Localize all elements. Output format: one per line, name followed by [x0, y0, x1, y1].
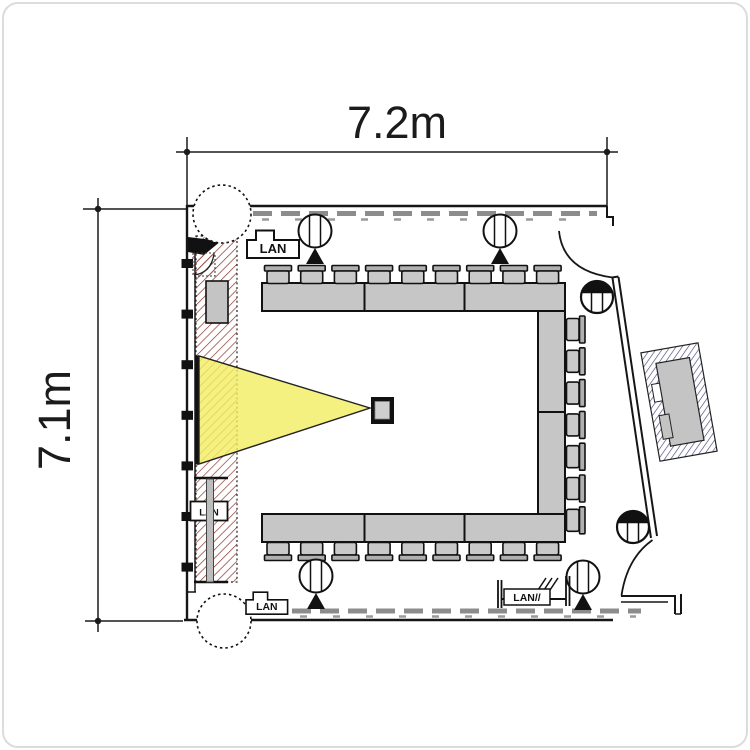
chair-seat — [334, 271, 356, 284]
chair-seat — [436, 271, 458, 284]
table-segment-joints — [365, 283, 566, 542]
speaker-icon — [299, 215, 332, 248]
downlight-cap — [617, 511, 649, 523]
chair-seat — [567, 350, 580, 372]
speaker-direction-marker — [306, 248, 324, 264]
lan-outlet-symbol: LAN — [247, 231, 299, 259]
lan-outlet-symbol: LAN — [246, 592, 288, 614]
chair-seat — [402, 271, 424, 284]
speaker-direction-marker — [574, 594, 592, 610]
speaker-direction-marker — [307, 593, 325, 609]
width-dimension-label: 7.2m — [347, 97, 447, 148]
chair-backrest — [580, 475, 586, 502]
chair-seat — [567, 414, 580, 436]
lan-outlet-label: LAN — [260, 241, 287, 256]
chair-backrest — [332, 555, 359, 561]
chair-backrest — [265, 555, 292, 561]
column — [193, 185, 251, 243]
chair-backrest — [500, 266, 527, 272]
table-top-run — [262, 283, 565, 311]
chair-backrest — [467, 555, 494, 561]
chair-backrest — [467, 266, 494, 272]
chair-backrest — [580, 348, 586, 375]
chair-seat — [402, 543, 424, 556]
chair-backrest — [366, 266, 393, 272]
speaker-icon — [484, 215, 517, 248]
door-swing-top-right — [559, 231, 613, 278]
chair-seat — [503, 543, 525, 556]
chair-backrest — [534, 266, 561, 272]
chair-seat — [567, 319, 580, 341]
lan-outlet-label: LAN// — [513, 592, 540, 604]
chair-seat — [537, 543, 559, 556]
lan-assembly-slashes — [538, 578, 558, 590]
chair-seat — [567, 509, 580, 531]
chair-backrest — [399, 555, 426, 561]
height-dimension-label: 7.1m — [29, 370, 80, 470]
chair-seat — [301, 543, 323, 556]
projection — [199, 356, 394, 464]
chair-backrest — [399, 266, 426, 272]
speaker-icon — [567, 561, 600, 594]
chair-seat — [334, 543, 356, 556]
chair-backrest — [580, 443, 586, 470]
chair-seat — [537, 271, 559, 284]
chair-backrest — [433, 266, 460, 272]
chair-backrest — [298, 266, 325, 272]
chair-backrest — [534, 555, 561, 561]
floor-plan-canvas: 7.2m 7.1m — [0, 0, 750, 750]
chair-backrest — [265, 266, 292, 272]
chair-seat — [436, 543, 458, 556]
projector-lens — [375, 402, 390, 420]
chair-backrest — [580, 411, 586, 438]
chair-seat — [301, 271, 323, 284]
chair-backrest — [433, 555, 460, 561]
chair-seat — [267, 543, 289, 556]
chair-backrest — [580, 507, 586, 534]
downlight-cap — [581, 281, 613, 293]
chair-backrest — [580, 380, 586, 407]
screen-roller-bar — [207, 479, 214, 582]
chair-seat — [567, 478, 580, 500]
chair-seat — [368, 271, 390, 284]
chair-backrest — [332, 266, 359, 272]
chair-seat — [469, 543, 491, 556]
table-bottom-run — [262, 514, 565, 542]
mullion-mark — [182, 563, 194, 572]
speaker-direction-marker — [491, 248, 509, 264]
wall-top-right-step — [607, 206, 613, 226]
mullion-mark — [182, 259, 194, 268]
equipment-box — [193, 253, 215, 276]
projection-cone — [199, 356, 370, 464]
chair-seat — [567, 446, 580, 468]
chair-seat — [567, 382, 580, 404]
chair-backrest — [366, 555, 393, 561]
chair-backrest — [500, 555, 527, 561]
column — [197, 594, 251, 648]
chair-seat — [503, 271, 525, 284]
floor-plan-drawing: 7.2m 7.1m — [0, 0, 750, 750]
mullion-mark — [182, 310, 194, 319]
mullion-mark — [182, 461, 194, 470]
mullion-mark — [182, 411, 194, 420]
chair-seat — [368, 543, 390, 556]
ac-unit — [641, 343, 717, 461]
mullion-mark — [182, 360, 194, 369]
av-cabinet — [206, 281, 228, 323]
chair-seat — [267, 271, 289, 284]
speaker-icon — [300, 560, 333, 593]
lan-outlet-label: LAN — [256, 602, 277, 613]
chair-seat — [469, 271, 491, 284]
chair-backrest — [580, 316, 586, 343]
door-swing-bottom-right — [622, 540, 653, 596]
